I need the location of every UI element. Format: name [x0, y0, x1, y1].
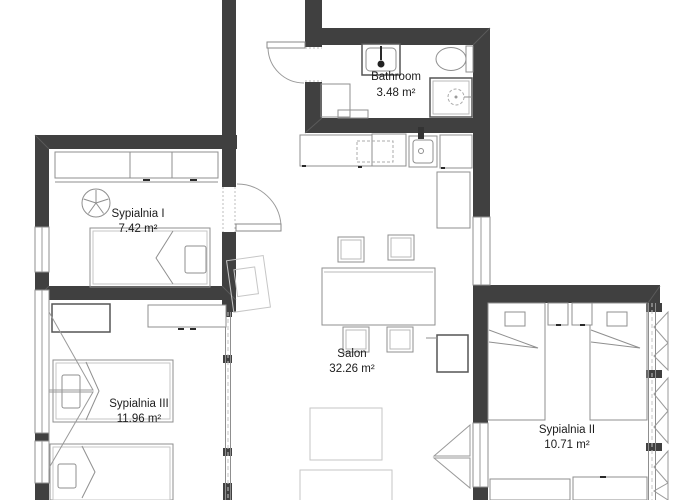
kitchen-cabinet — [440, 135, 472, 168]
door-bathroom — [267, 42, 322, 83]
bed — [590, 303, 647, 420]
dining-chair — [338, 237, 364, 262]
window-sypialnia-3-west-upper — [35, 290, 49, 433]
dining-chair — [388, 235, 414, 260]
kitchen-cabinet — [372, 134, 406, 166]
chair — [82, 189, 110, 217]
nightstand — [572, 303, 592, 325]
window-salon-east — [473, 217, 490, 285]
sofa — [310, 408, 382, 460]
room-name-sypialnia-1: Sypialnia I — [111, 208, 164, 220]
fridge — [437, 172, 470, 228]
window-sypialnia-1-west — [35, 227, 49, 272]
rug — [300, 470, 392, 500]
tv-cabinet — [426, 335, 468, 372]
room-area-sypialnia-3: 11.96 m² — [117, 413, 162, 425]
dining-table — [322, 268, 435, 325]
floor-plan-drawing: Bathroom 3.48 m² Sypialnia I 7.42 m² Sal… — [0, 0, 700, 500]
nightstand — [548, 303, 568, 325]
kitchen-cabinet — [300, 135, 372, 166]
room-name-sypialnia-3: Sypialnia III — [109, 398, 168, 410]
floor-plan: Bathroom 3.48 m² Sypialnia I 7.42 m² Sal… — [0, 0, 700, 500]
room-area-salon: 32.26 m² — [329, 363, 375, 375]
bed — [90, 228, 210, 287]
window-sypialnia-2-west — [473, 423, 488, 487]
door-sypialnia-1 — [222, 184, 281, 232]
shower — [430, 78, 472, 117]
room-area-sypialnia-1: 7.42 m² — [119, 223, 158, 235]
glass-partition-sypialnia-3 — [226, 312, 231, 500]
toilet — [436, 46, 473, 72]
wardrobe — [490, 477, 647, 500]
window-wall-sypialnia-2-east — [649, 303, 656, 500]
curtains — [49, 312, 93, 468]
curtains — [434, 312, 668, 500]
room-area-sypialnia-2: 10.71 m² — [544, 439, 590, 451]
sypialnia-2-furniture — [434, 303, 668, 500]
bed — [488, 303, 545, 420]
washing-machine — [321, 84, 368, 118]
cabinet — [148, 305, 226, 329]
wardrobe — [55, 152, 218, 182]
room-area-bathroom: 3.48 m² — [377, 87, 416, 99]
bed — [50, 444, 173, 500]
room-name-bathroom: Bathroom — [371, 71, 421, 83]
window-sypialnia-3-west-lower — [35, 441, 49, 483]
room-name-salon: Salon — [337, 348, 366, 360]
dresser — [52, 304, 110, 332]
dining-chair — [387, 327, 413, 352]
kitchen — [300, 127, 472, 228]
room-name-sypialnia-2: Sypialnia II — [539, 424, 595, 436]
